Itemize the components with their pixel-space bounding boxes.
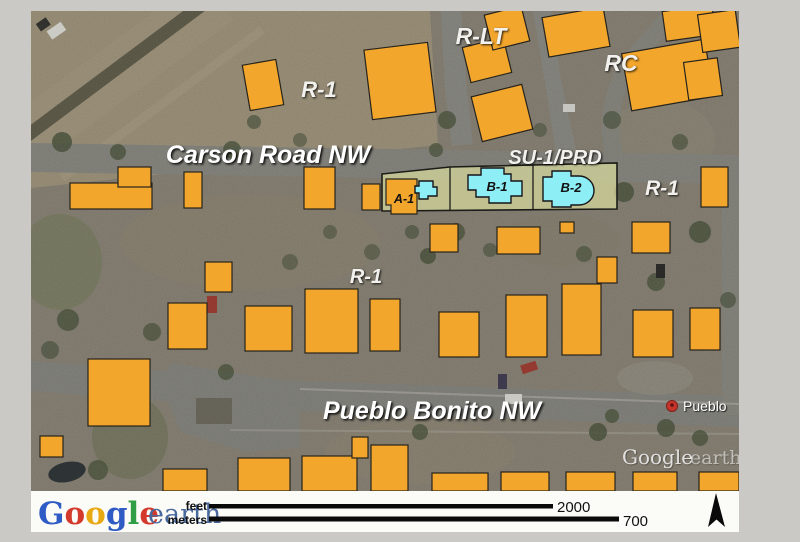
building-footprint — [497, 227, 540, 254]
scale-feet-bar — [209, 504, 553, 509]
building-footprint — [242, 59, 283, 110]
google-earth-logo: Google — [38, 496, 159, 532]
building-footprint — [245, 306, 292, 351]
building-footprint — [633, 472, 677, 491]
building-footprint — [684, 58, 723, 100]
road-label-carson: Carson Road NW — [166, 141, 373, 169]
building-footprint — [560, 222, 574, 233]
building-footprint — [168, 303, 207, 349]
building-footprint — [364, 42, 436, 119]
watermark-earth: earth — [690, 447, 742, 469]
watermark-google: Google — [622, 445, 693, 469]
building-label-b2: B-2 — [561, 180, 583, 195]
building-footprint — [118, 167, 151, 187]
building-footprint — [40, 436, 63, 457]
building-footprint — [699, 472, 739, 491]
zone-label-su1-prd: SU-1/PRD — [508, 147, 601, 169]
building-footprint — [597, 257, 617, 283]
building-footprint — [184, 172, 202, 208]
building-footprint — [690, 308, 720, 350]
building-footprint — [370, 299, 400, 351]
road-label-pueblo: Pueblo Bonito NW — [323, 397, 543, 425]
scale-feet-value: 2000 — [557, 499, 590, 516]
building-footprint — [633, 310, 673, 357]
zone-label-r1-top: R-1 — [301, 77, 336, 102]
pin-icon-dot — [670, 403, 674, 407]
building-a1-addition — [415, 181, 437, 199]
zone-label-r1-east: R-1 — [645, 177, 679, 200]
zone-label-rc: RC — [604, 50, 638, 76]
building-footprint — [430, 224, 458, 252]
building-footprint — [302, 456, 357, 491]
building-footprint — [501, 472, 549, 491]
imagery-watermark: Google earth — [622, 445, 742, 469]
building-footprint — [305, 289, 358, 353]
building-footprint — [432, 473, 488, 491]
building-footprint — [362, 184, 380, 210]
building-footprint — [238, 458, 290, 491]
building-footprint — [371, 445, 408, 491]
zone-label-r1-center: R-1 — [350, 266, 382, 288]
scale-feet-label: feet — [186, 499, 207, 513]
building-footprint — [352, 437, 368, 458]
zoning-map-figure: R-1 R-LT RC SU-1/PRD R-1 R-1 Carson Road… — [0, 0, 800, 542]
building-footprint — [698, 10, 741, 53]
building-footprint — [205, 262, 232, 292]
building-footprint — [88, 359, 150, 426]
building-label-b1: B-1 — [487, 179, 508, 194]
pin-label: Pueblo — [683, 398, 727, 414]
aerial-imagery-layer: R-1 R-LT RC SU-1/PRD R-1 R-1 Carson Road… — [18, 0, 742, 491]
scale-meters-value: 700 — [623, 513, 648, 530]
scale-meters-label: meters — [168, 513, 208, 527]
zone-label-rlt: R-LT — [456, 23, 509, 49]
building-footprint — [506, 295, 547, 357]
legend-bar: Google earth feet 2000 meters 700 — [31, 491, 739, 532]
building-footprint — [304, 167, 335, 209]
building-label-a1: A-1 — [393, 192, 414, 206]
building-footprint — [562, 284, 601, 355]
scale-meters-bar — [209, 517, 619, 522]
building-footprint — [439, 312, 479, 357]
building-footprint — [701, 167, 728, 207]
building-footprint — [632, 222, 670, 253]
map-canvas: R-1 R-LT RC SU-1/PRD R-1 R-1 Carson Road… — [0, 0, 800, 542]
building-footprint — [566, 472, 615, 491]
building-footprint — [163, 469, 207, 491]
